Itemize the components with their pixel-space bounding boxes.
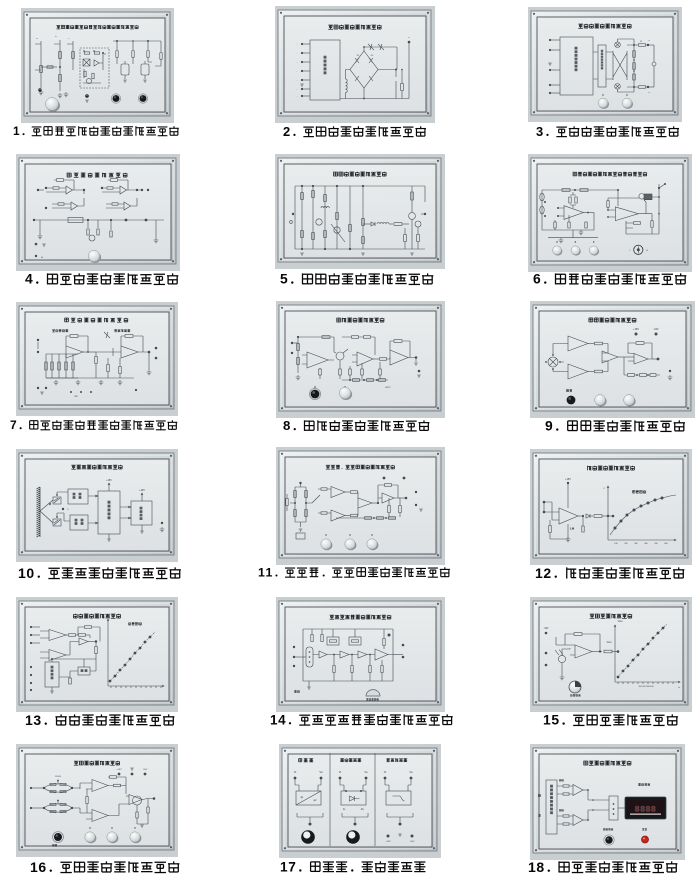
svg-text:1: 1 (543, 713, 551, 728)
svg-text:1: 1 (535, 566, 543, 581)
svg-text:R1-R4: R1-R4 (55, 776, 62, 778)
svg-text:Vi: Vi (339, 770, 342, 774)
svg-text:1: 1 (270, 713, 278, 727)
svg-text:1: 1 (528, 860, 536, 875)
svg-text:+15V: +15V (633, 328, 639, 331)
svg-text:100 200 300 400: 100 200 300 400 (638, 686, 654, 688)
svg-text:9: 9 (545, 419, 553, 434)
svg-text:Vo: Vo (319, 770, 323, 774)
svg-text:1: 1 (280, 860, 288, 874)
svg-text:3: 3 (536, 125, 543, 139)
svg-text:8: 8 (536, 860, 544, 875)
svg-text:1: 1 (18, 566, 26, 581)
svg-text:3: 3 (33, 713, 41, 728)
svg-text:2: 2 (543, 566, 551, 581)
svg-text:Vout: Vout (618, 620, 623, 623)
svg-text:100: 100 (614, 543, 617, 545)
svg-text:Vo: Vo (364, 770, 368, 774)
svg-text:a b c: a b c (385, 386, 391, 389)
svg-text:-15V: -15V (653, 328, 658, 331)
svg-text:7: 7 (10, 419, 17, 432)
svg-text:0: 0 (26, 566, 34, 581)
svg-text:+15V: +15V (116, 769, 122, 771)
svg-text:4: 4 (25, 272, 33, 287)
svg-text:7: 7 (288, 860, 296, 874)
svg-text:+15V: +15V (385, 841, 391, 843)
svg-text:300: 300 (634, 543, 637, 545)
svg-text:-15V: -15V (544, 628, 549, 630)
svg-text:1: 1 (265, 566, 272, 579)
svg-text:200: 200 (624, 543, 627, 545)
svg-text:-15V: -15V (410, 841, 415, 843)
svg-text:Vi: Vi (384, 770, 387, 774)
svg-text:1: 1 (30, 860, 38, 875)
svg-text:8888: 8888 (635, 805, 657, 815)
svg-text:+15V: +15V (139, 489, 145, 492)
svg-text:1: 1 (25, 713, 33, 728)
svg-text:+15V: +15V (106, 479, 112, 482)
svg-text:-15V: -15V (143, 769, 148, 771)
svg-text:Vi: Vi (294, 770, 297, 774)
svg-text:2: 2 (283, 125, 290, 139)
svg-text:Vout: Vout (607, 641, 612, 644)
svg-text:600: 600 (664, 543, 667, 545)
svg-text:400: 400 (644, 543, 647, 545)
svg-text:5: 5 (551, 713, 559, 728)
svg-text:1: 1 (258, 566, 265, 579)
svg-text:+15V: +15V (565, 478, 571, 481)
svg-text:500: 500 (654, 543, 657, 545)
svg-text:Vo: Vo (409, 770, 413, 774)
svg-text:8: 8 (283, 419, 290, 433)
svg-text:1: 1 (13, 125, 20, 138)
svg-text:4: 4 (278, 713, 286, 727)
svg-text:6: 6 (533, 272, 541, 287)
svg-text:Ar: Ar (343, 808, 346, 811)
svg-text:6: 6 (38, 860, 46, 875)
svg-text:5: 5 (280, 272, 288, 287)
